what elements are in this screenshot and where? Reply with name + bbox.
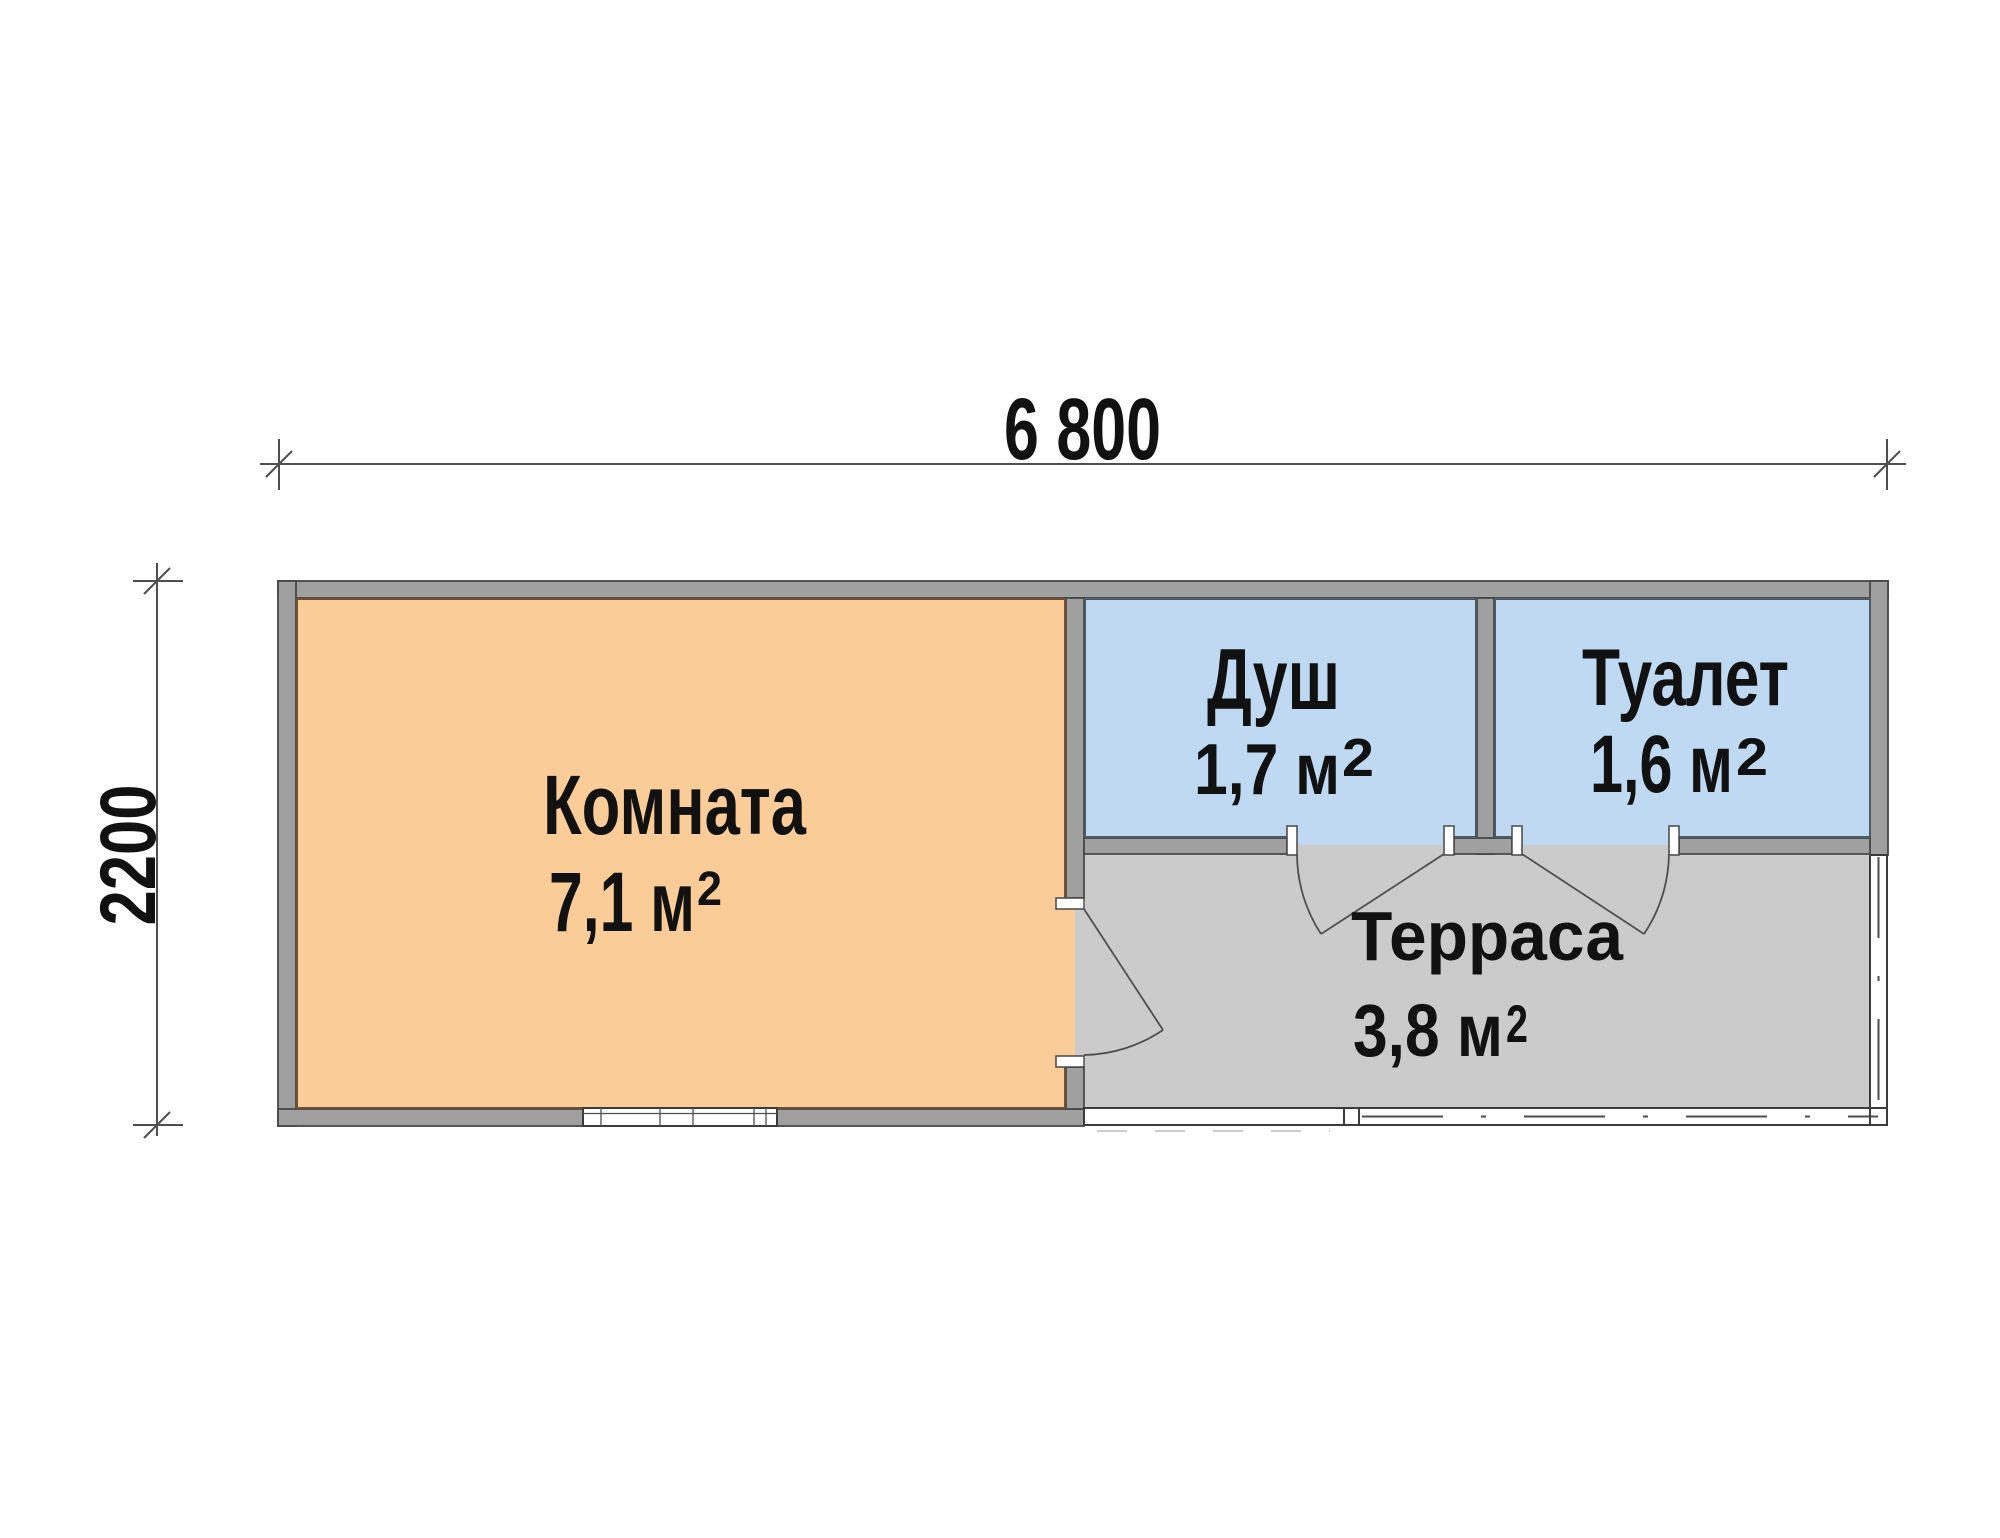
- svg-text:1,6 м: 1,6 м: [1590, 719, 1733, 810]
- svg-text:2: 2: [1342, 728, 1374, 788]
- svg-text:2: 2: [1506, 995, 1528, 1054]
- svg-text:2: 2: [697, 863, 722, 916]
- svg-text:Комната: Комната: [543, 758, 807, 852]
- svg-text:7,1 м: 7,1 м: [549, 855, 695, 949]
- svg-text:Терраса: Терраса: [1351, 897, 1624, 975]
- svg-text:3,8 м: 3,8 м: [1353, 989, 1503, 1072]
- svg-text:1,7 м: 1,7 м: [1194, 730, 1340, 810]
- svg-text:6 800: 6 800: [1004, 381, 1161, 478]
- svg-text:Туалет: Туалет: [1582, 633, 1789, 723]
- svg-text:2: 2: [1736, 728, 1768, 787]
- svg-text:2200: 2200: [83, 785, 172, 926]
- svg-text:Душ: Душ: [1207, 632, 1340, 728]
